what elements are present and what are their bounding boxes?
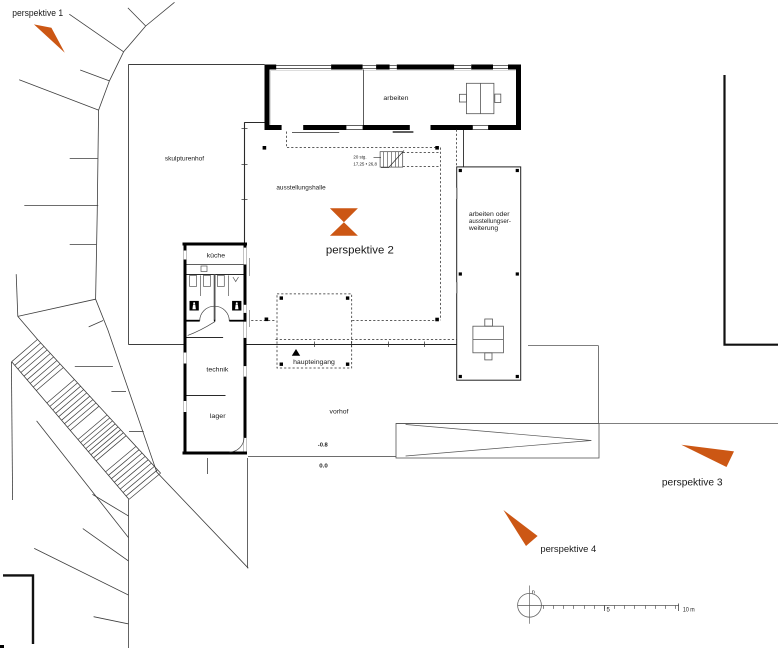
svg-text:haupteingang: haupteingang <box>293 359 335 366</box>
svg-text:küche: küche <box>207 253 226 260</box>
svg-text:ausstellungser-: ausstellungser- <box>469 218 511 225</box>
svg-text:vorhof: vorhof <box>330 408 349 415</box>
svg-text:perspektive 3: perspektive 3 <box>662 478 723 489</box>
svg-text:arbeiten oder: arbeiten oder <box>469 211 510 218</box>
svg-text:-0.8: -0.8 <box>318 443 329 449</box>
svg-text:skulpturenhof: skulpturenhof <box>165 156 204 163</box>
svg-text:lager: lager <box>210 413 226 420</box>
svg-text:10 m: 10 m <box>683 608 695 614</box>
svg-text:ausstellungshalle: ausstellungshalle <box>276 185 326 192</box>
svg-text:17,25 • 26,8: 17,25 • 26,8 <box>353 162 377 167</box>
svg-text:perspektive 1: perspektive 1 <box>12 8 63 18</box>
svg-text:0.0: 0.0 <box>319 463 328 469</box>
svg-text:20 stg.: 20 stg. <box>353 155 366 160</box>
svg-text:n: n <box>532 590 535 596</box>
svg-text:perspektive 4: perspektive 4 <box>540 544 596 555</box>
svg-text:weiterung: weiterung <box>468 225 499 232</box>
svg-text:arbeiten: arbeiten <box>383 95 409 102</box>
svg-text:perspektive 2: perspektive 2 <box>326 245 394 257</box>
svg-text:technik: technik <box>206 367 229 374</box>
